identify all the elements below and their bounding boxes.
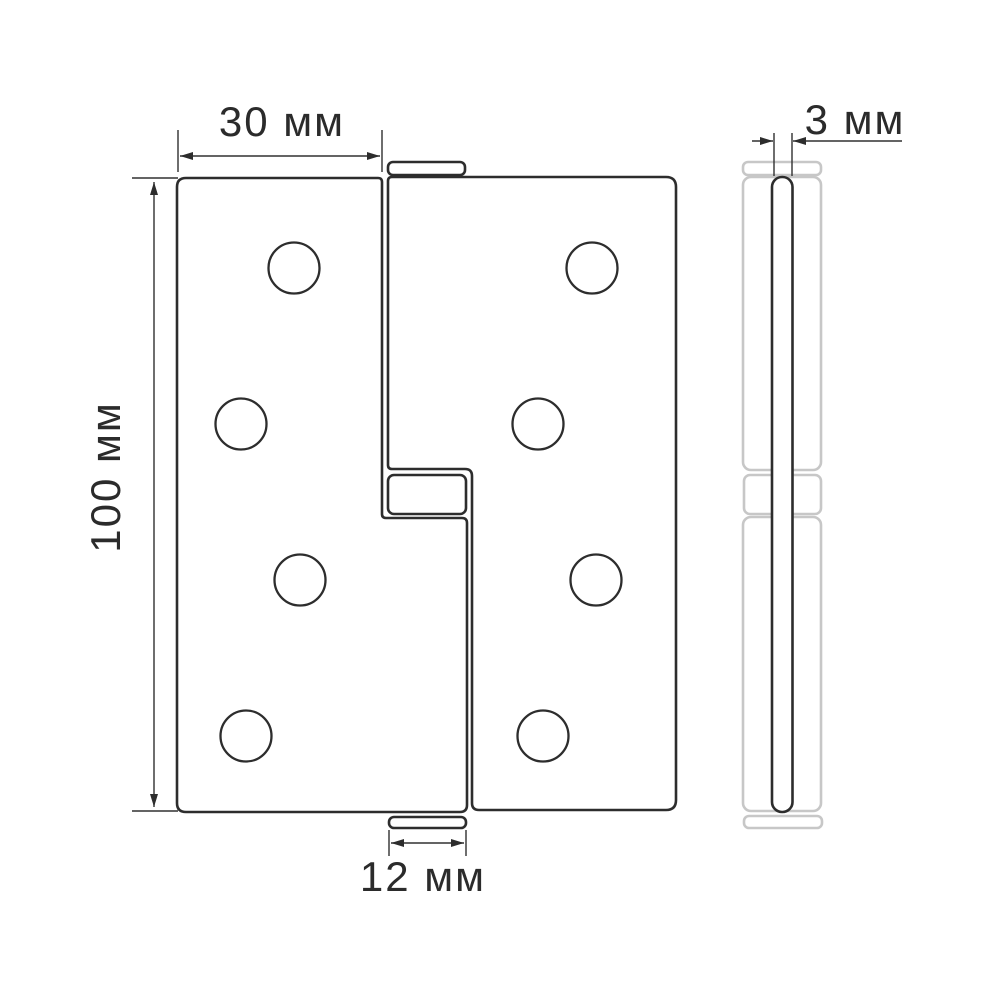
screw-hole [513,399,564,450]
hinge-drawing-canvas: 30 мм 100 мм 12 мм 3 мм [0,0,1000,1000]
screw-hole [275,555,326,606]
dimension-plate-width: 30 мм [178,98,382,172]
side-view-hinge-pin-barrel [772,177,793,812]
hinge-front-view [177,162,676,828]
front-view-bottom-knuckle-tab [389,817,466,828]
dimension-label-height: 100 мм [82,401,129,553]
screw-hole [221,711,272,762]
dimension-label-knuckle-width: 12 мм [360,853,486,900]
hinge-drawing: 30 мм 100 мм 12 мм 3 мм [0,0,1000,1000]
screw-hole [216,399,267,450]
screw-hole [567,243,618,294]
screw-hole [571,555,622,606]
front-view-middle-knuckle [388,475,466,514]
screw-hole [269,243,320,294]
hinge-side-view [743,162,822,828]
side-view-bottom-knuckle-tab [744,816,822,828]
front-view-top-knuckle-tab [388,162,465,175]
dimension-knuckle-width: 12 мм [360,830,486,900]
screw-hole [518,711,569,762]
dimension-label-plate-width: 30 мм [219,98,345,145]
dimension-label-thickness: 3 мм [805,96,906,143]
side-view-top-knuckle-tab [743,162,821,175]
dimension-height: 100 мм [82,178,178,811]
